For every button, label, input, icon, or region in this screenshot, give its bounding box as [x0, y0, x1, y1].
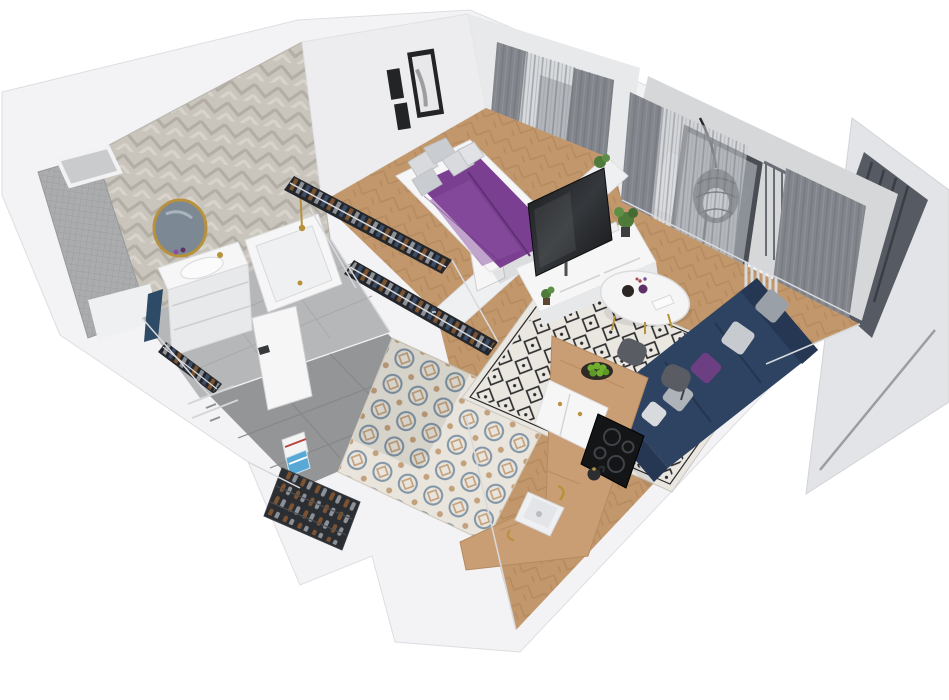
vase — [639, 285, 648, 294]
floorplan-render — [0, 0, 949, 700]
floorplan-svg — [0, 0, 949, 700]
fruit-bowl — [581, 362, 613, 380]
round-mirror — [154, 200, 206, 256]
bowl — [622, 285, 634, 297]
